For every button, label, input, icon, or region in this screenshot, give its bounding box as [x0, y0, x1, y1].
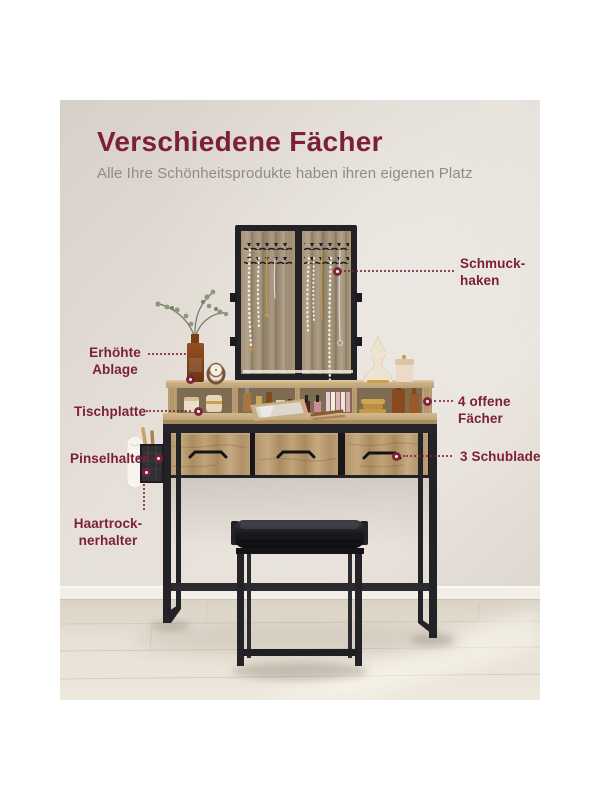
annotation-haartrocknerhalter: Haartrock- nerhalter	[66, 515, 150, 549]
page-title: Verschiedene Fächer	[97, 126, 383, 158]
marker-dot-tischplatte	[194, 407, 203, 416]
annotation-pinselhalter: Pinselhalter	[70, 450, 148, 467]
leader-line-erhoehte-ablage	[148, 353, 186, 355]
product-infographic-page: Verschiedene Fächer Alle Ihre Schönheits…	[0, 0, 600, 800]
page-subtitle: Alle Ihre Schönheitsprodukte haben ihren…	[97, 165, 473, 182]
annotation-schubladen: 3 Schubladen	[460, 448, 540, 465]
leader-line-tischplatte	[146, 410, 191, 412]
leader-line-haartrocknerhalter	[143, 479, 145, 510]
marker-dot-pinselhalter	[154, 454, 163, 463]
annotation-offene-faecher: 4 offene Fächer	[458, 393, 511, 427]
leader-line-schmuckhaken	[344, 270, 454, 272]
annotation-schmuckhaken: Schmuck- haken	[460, 255, 525, 289]
leader-line-offene-faecher	[434, 400, 453, 402]
marker-dot-offene-faecher	[423, 397, 432, 406]
leader-line-schubladen	[403, 455, 452, 457]
mirror-cabinet	[230, 225, 362, 391]
marker-dot-schmuckhaken	[333, 267, 342, 276]
annotation-erhoehte-ablage: Erhöhte Ablage	[82, 344, 148, 378]
marker-dot-erhoehte-ablage	[186, 375, 195, 384]
marker-dot-haartrocknerhalter	[142, 468, 151, 477]
photo-area: Verschiedene Fächer Alle Ihre Schönheits…	[60, 100, 540, 700]
marker-dot-schubladen	[392, 452, 401, 461]
annotation-tischplatte: Tischplatte	[74, 403, 146, 420]
